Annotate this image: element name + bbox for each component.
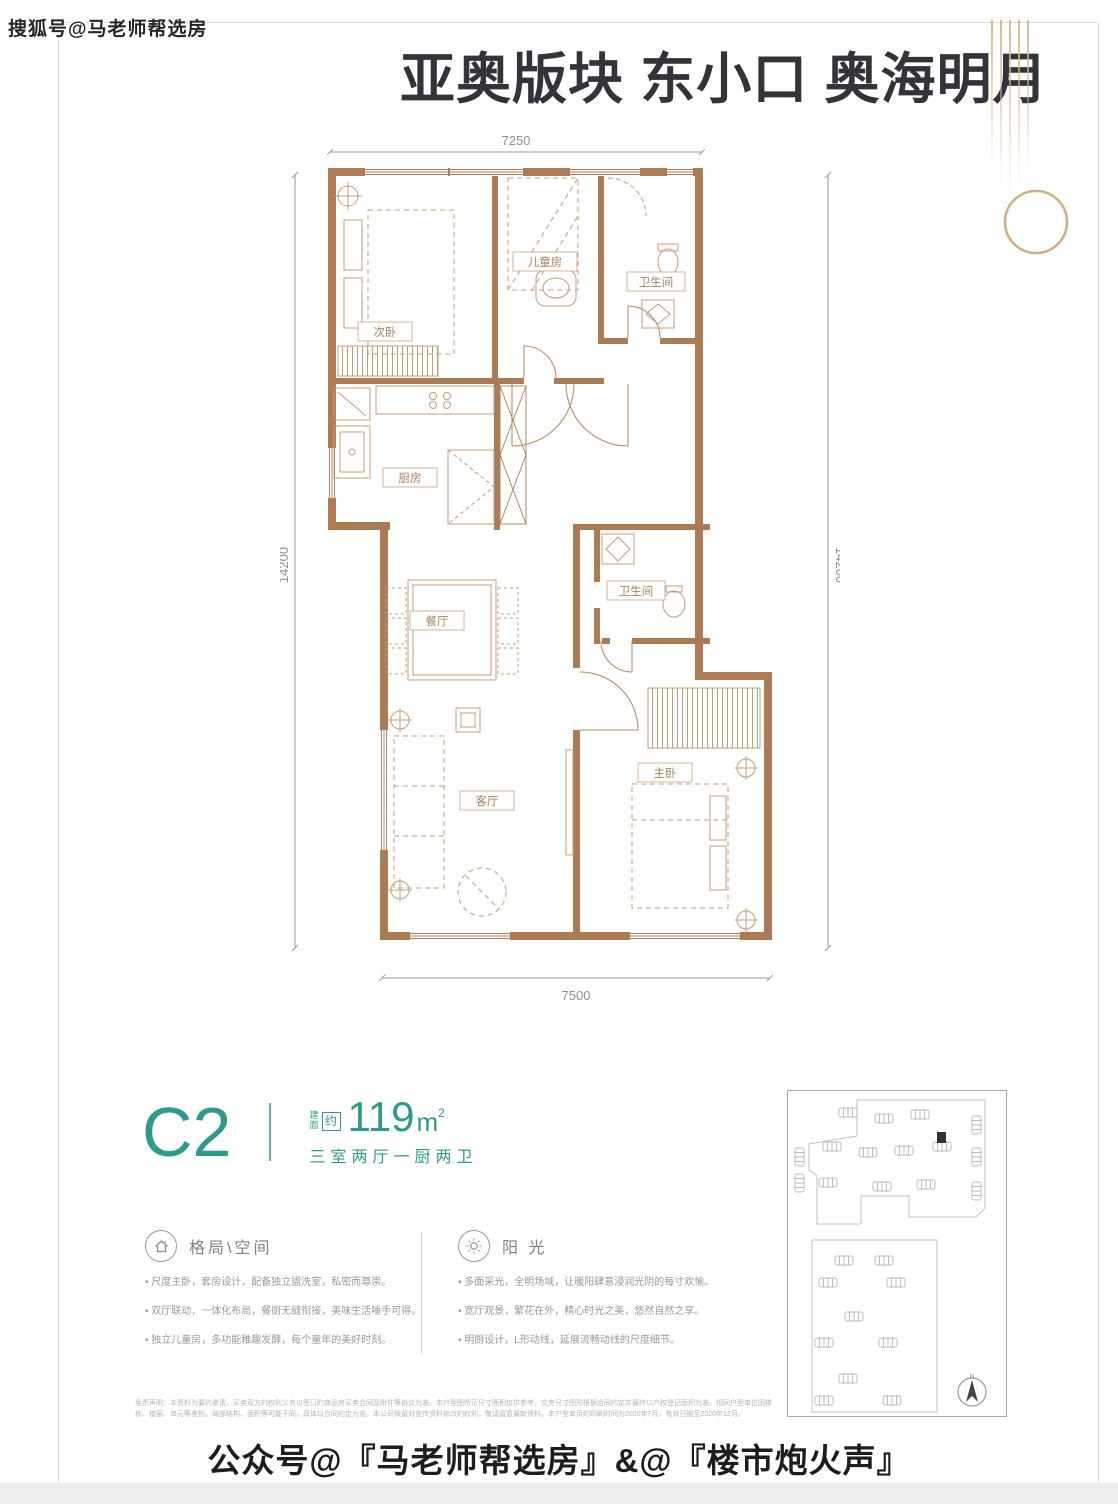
unit-info: C2 建 面 约 119 m2 三室两厅一厨两卫 <box>142 1096 478 1168</box>
floor-plan: 7250 14200 14200 7500 <box>280 120 840 1020</box>
room-label-master: 主卧 <box>638 763 692 782</box>
disclaimer-text: 免责声明：本资料为要约邀请，买卖双方的权利义务以签订的商品房买卖合同及附件等协议… <box>135 1398 780 1420</box>
dim-top: 7250 <box>502 133 531 148</box>
dim-right: 14200 <box>833 547 840 583</box>
section-bullets: 多面采光，全明场域，让暖阳肆意浸润光阴的每寸欢愉。 宽厅观景，繁花在外，精心时光… <box>458 1278 758 1346</box>
svg-text:主卧: 主卧 <box>654 767 677 780</box>
duct-shaft <box>500 386 526 524</box>
sun-icon <box>458 1230 490 1262</box>
room-label-children: 儿童房 <box>513 252 577 271</box>
unit-layout-desc: 三室两厅一厨两卫 <box>309 1143 477 1167</box>
bullet: 独立儿童房，多功能稚趣发酵，每个童年的美好时刻。 <box>145 1336 445 1346</box>
unit-code: C2 <box>142 1096 231 1168</box>
section-sunlight: 阳 光 多面采光，全明场域，让暖阳肆意浸润光阴的每寸欢愉。 宽厅观景，繁花在外，… <box>458 1230 758 1365</box>
bullet: 宽厅观景，繁花在外，精心时光之美，悠然自然之享。 <box>458 1307 758 1317</box>
bullet: 明厨设计，L形动线，延展流畅动线的尺度细节。 <box>458 1336 758 1346</box>
plan-doors <box>512 306 660 730</box>
area-prefix: 建 面 <box>309 1110 318 1130</box>
svg-text:餐厅: 餐厅 <box>426 614 449 628</box>
svg-text:次卧: 次卧 <box>374 325 397 339</box>
area-unit-sup: 2 <box>438 1106 445 1120</box>
dim-bottom: 7500 <box>562 988 591 1003</box>
area-prefix-top: 建 <box>309 1110 318 1120</box>
room-label-kitchen: 厨房 <box>383 468 437 487</box>
approx-box: 约 <box>322 1112 341 1131</box>
bullet: 尺度主卧，套房设计，配备独立盥洗室，私密而尊崇。 <box>145 1278 445 1288</box>
plan-walls <box>328 168 772 940</box>
section-title: 格局\空间 <box>189 1234 272 1258</box>
section-divider <box>421 1232 422 1354</box>
highlighted-building <box>937 1132 946 1143</box>
unit-divider <box>269 1103 271 1161</box>
room-label-cibedroom: 次卧 <box>358 322 412 341</box>
bullet: 双厅联动，一体化布局，餐厨无缝衔接，美味生活唾手可得。 <box>145 1307 445 1317</box>
bullet: 多面采光，全明场域，让暖阳肆意浸润光阴的每寸欢愉。 <box>458 1278 758 1288</box>
compass-north-label: N <box>969 1374 974 1381</box>
section-title: 阳 光 <box>502 1234 547 1258</box>
plan-room-labels: 次卧 儿童房 卫生间 厨房 餐厅 卫生间 <box>358 252 692 810</box>
section-layout-space: 格局\空间 尺度主卧，套房设计，配备独立盥洗室，私密而尊崇。 双厅联动，一体化布… <box>145 1230 445 1365</box>
watermark: 搜狐号@马老师帮选房 <box>8 14 208 41</box>
room-label-bath2: 卫生间 <box>607 581 665 600</box>
brochure-page: 搜狐号@马老师帮选房 亚奥版块 东小口 奥海明月 7250 14200 <box>0 0 1118 1504</box>
page-title: 亚奥版块 东小口 奥海明月 <box>400 34 1049 114</box>
house-icon <box>145 1230 177 1262</box>
area-prefix-bottom: 面 <box>309 1120 318 1130</box>
site-plan: N <box>787 1090 1007 1417</box>
area-unit-m: m <box>416 1107 438 1137</box>
gold-lines-decoration <box>991 20 1036 198</box>
dim-left: 14200 <box>280 547 291 583</box>
svg-text:厨房: 厨房 <box>399 472 422 485</box>
area-unit: m2 <box>416 1098 444 1137</box>
room-label-dining: 餐厅 <box>410 611 464 630</box>
plan-dimensions <box>292 149 831 981</box>
svg-text:卫生间: 卫生间 <box>619 584 654 598</box>
room-label-living: 客厅 <box>460 791 514 810</box>
bottom-band <box>0 1483 1118 1504</box>
area-value: 119 <box>348 1097 415 1137</box>
svg-text:儿童房: 儿童房 <box>528 255 563 269</box>
svg-text:卫生间: 卫生间 <box>639 275 674 289</box>
section-bullets: 尺度主卧，套房设计，配备独立盥洗室，私密而尊崇。 双厅联动，一体化布局，餐厨无缝… <box>145 1278 445 1346</box>
footer-text: 公众号@『马老师帮选房』&@『楼市炮火声』 <box>0 1434 1118 1482</box>
room-label-bath1: 卫生间 <box>627 272 685 291</box>
svg-text:客厅: 客厅 <box>476 794 499 808</box>
gold-ring-decoration <box>1000 186 1072 258</box>
